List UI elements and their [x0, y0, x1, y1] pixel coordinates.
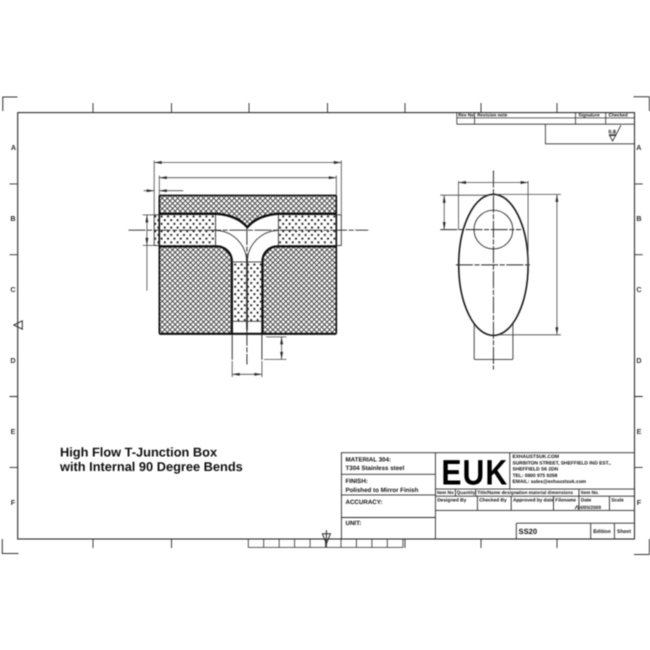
svg-text:Revision note: Revision note	[477, 113, 508, 118]
svg-text:Scale: Scale	[611, 498, 624, 504]
svg-text:High Flow T-Junction Box: High Flow T-Junction Box	[60, 445, 218, 460]
svg-text:E: E	[637, 427, 642, 436]
svg-text:Filename: Filename	[555, 498, 576, 504]
svg-text:UNIT:: UNIT:	[346, 520, 362, 527]
svg-text:Approved by date: Approved by date	[513, 498, 554, 504]
svg-text:E: E	[11, 427, 16, 436]
svg-text:ACCURACY:: ACCURACY:	[346, 499, 383, 506]
svg-text:TEL: 0800 975 9268: TEL: 0800 975 9268	[513, 473, 558, 479]
svg-text:D: D	[636, 356, 641, 365]
svg-text:SURBITON STREET, SHEFFIELD IND: SURBITON STREET, SHEFFIELD IND EST.,	[513, 460, 612, 466]
svg-text:EUK: EUK	[441, 452, 508, 492]
svg-text:Item No: Item No	[437, 490, 454, 495]
svg-text:C: C	[636, 285, 641, 294]
svg-text:B: B	[10, 214, 15, 223]
svg-text:Date: Date	[581, 498, 592, 504]
svg-text:with Internal 90 Degree Bends: with Internal 90 Degree Bends	[59, 459, 243, 474]
svg-text:EMAIL: sales@exhaustsuk.com: EMAIL: sales@exhaustsuk.com	[513, 479, 587, 485]
svg-text:T304 Stainless steel: T304 Stainless steel	[346, 465, 405, 472]
svg-text:Checked By: Checked By	[479, 498, 507, 504]
svg-text:MATERIAL 304:: MATERIAL 304:	[346, 457, 392, 464]
svg-text:FINISH:: FINISH:	[346, 478, 368, 485]
svg-text:A: A	[636, 143, 641, 152]
svg-text:Item No.: Item No.	[581, 490, 599, 495]
svg-text:SS20: SS20	[519, 527, 538, 536]
svg-text:Rev No: Rev No	[458, 113, 474, 118]
svg-text:Quantity: Quantity	[457, 490, 476, 495]
svg-text:F: F	[637, 498, 642, 507]
svg-text:Checked: Checked	[609, 113, 628, 118]
svg-text:04/05/2009: 04/05/2009	[577, 505, 601, 511]
svg-text:Sheet: Sheet	[617, 529, 631, 535]
svg-text:D: D	[10, 356, 15, 365]
svg-text:Edition: Edition	[593, 529, 611, 535]
svg-text:SHEFFIELD S6 2DN: SHEFFIELD S6 2DN	[513, 467, 559, 473]
svg-text:A: A	[11, 143, 16, 152]
svg-text:Designed By: Designed By	[437, 498, 466, 504]
svg-text:Title/Name designation materia: Title/Name designation material dimensio…	[477, 490, 573, 495]
svg-text:Polished to Mirror Finish: Polished to Mirror Finish	[346, 487, 419, 494]
svg-text:Signature: Signature	[579, 113, 601, 118]
svg-text:EXHAUSTSUK.COM: EXHAUSTSUK.COM	[513, 454, 559, 460]
svg-text:C: C	[10, 285, 15, 294]
svg-text:F: F	[11, 498, 16, 507]
svg-text:B: B	[636, 214, 641, 223]
